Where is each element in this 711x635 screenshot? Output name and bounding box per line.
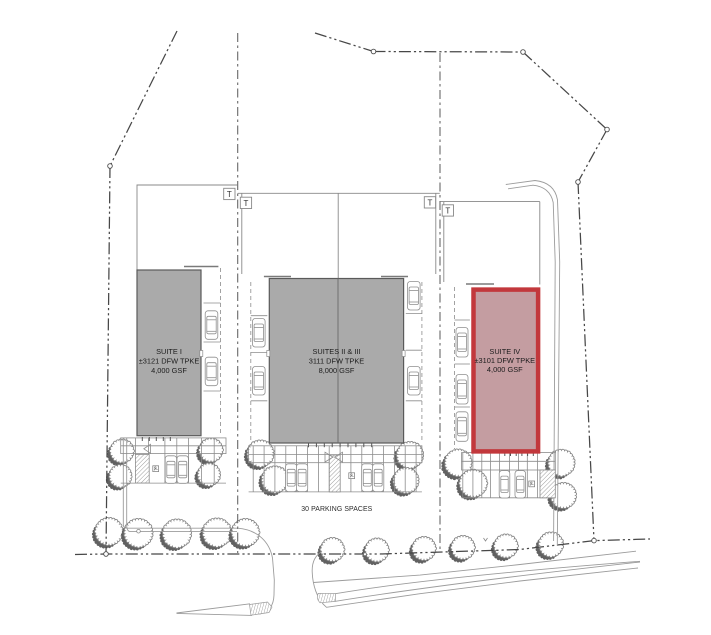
svg-text:T: T bbox=[244, 199, 249, 208]
svg-text:4,000 GSF: 4,000 GSF bbox=[487, 365, 523, 374]
svg-text:8,000 GSF: 8,000 GSF bbox=[319, 366, 355, 375]
svg-text:SUITE IV: SUITE IV bbox=[489, 347, 520, 356]
svg-text:±3101 DFW TPKE: ±3101 DFW TPKE bbox=[474, 356, 535, 365]
svg-text:4,000 GSF: 4,000 GSF bbox=[151, 366, 187, 375]
svg-text:SUITES II & III: SUITES II & III bbox=[312, 347, 360, 356]
svg-text:T: T bbox=[445, 207, 450, 216]
svg-text:30 PARKING SPACES: 30 PARKING SPACES bbox=[301, 506, 372, 513]
svg-text:SUITE I: SUITE I bbox=[156, 347, 182, 356]
svg-text:T: T bbox=[227, 190, 232, 199]
svg-text:±3121 DFW TPKE: ±3121 DFW TPKE bbox=[139, 357, 200, 366]
svg-text:3111 DFW TPKE: 3111 DFW TPKE bbox=[309, 357, 365, 366]
svg-text:T: T bbox=[428, 199, 433, 208]
